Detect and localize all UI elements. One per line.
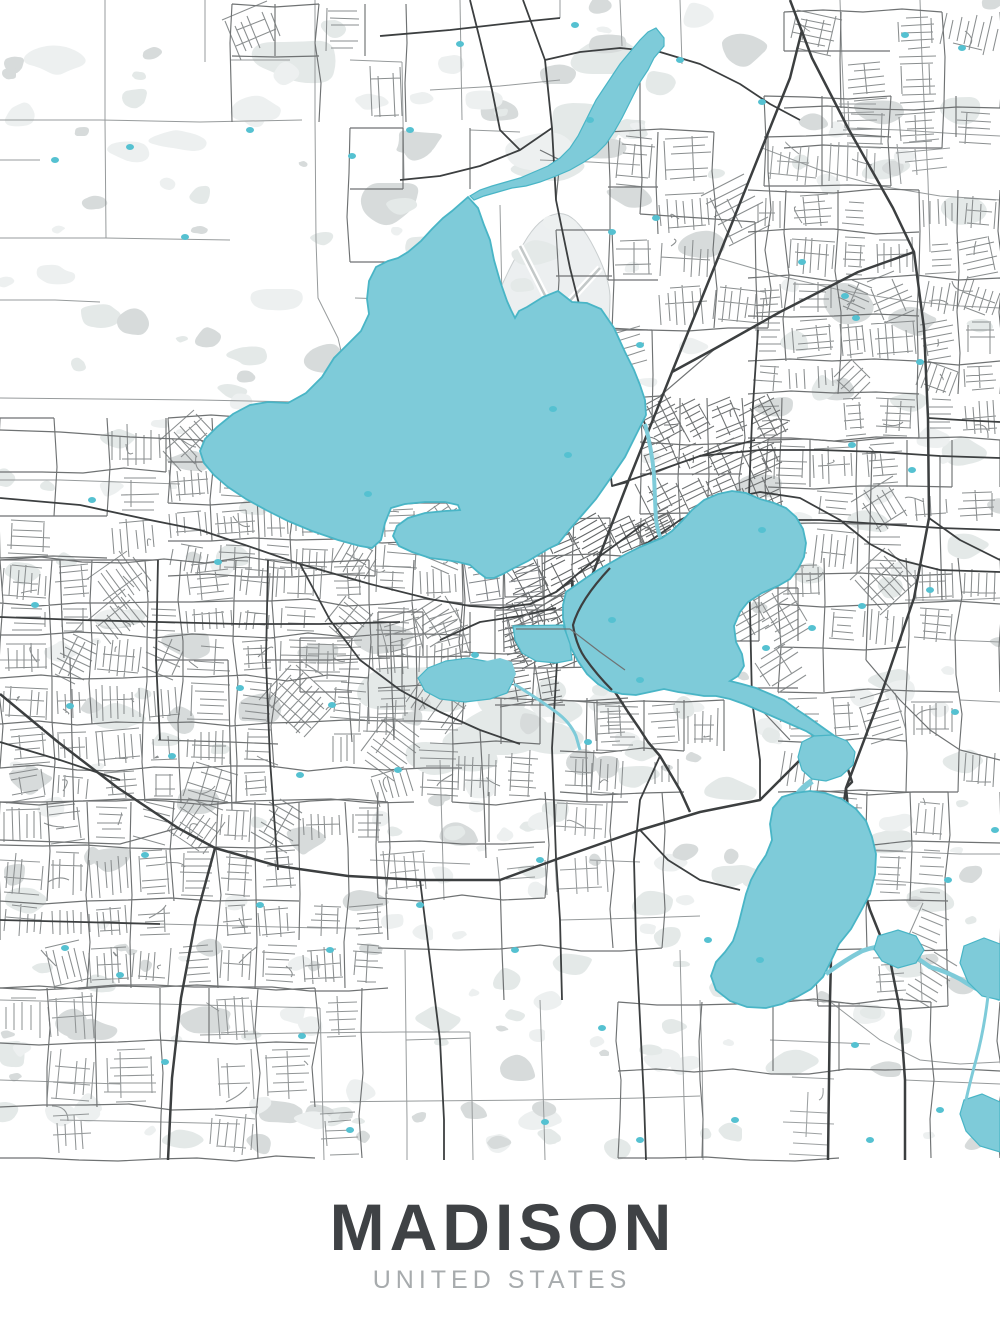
svg-text:UNITED STATES: UNITED STATES: [373, 1266, 632, 1294]
svg-text:MADISON: MADISON: [330, 1190, 677, 1264]
